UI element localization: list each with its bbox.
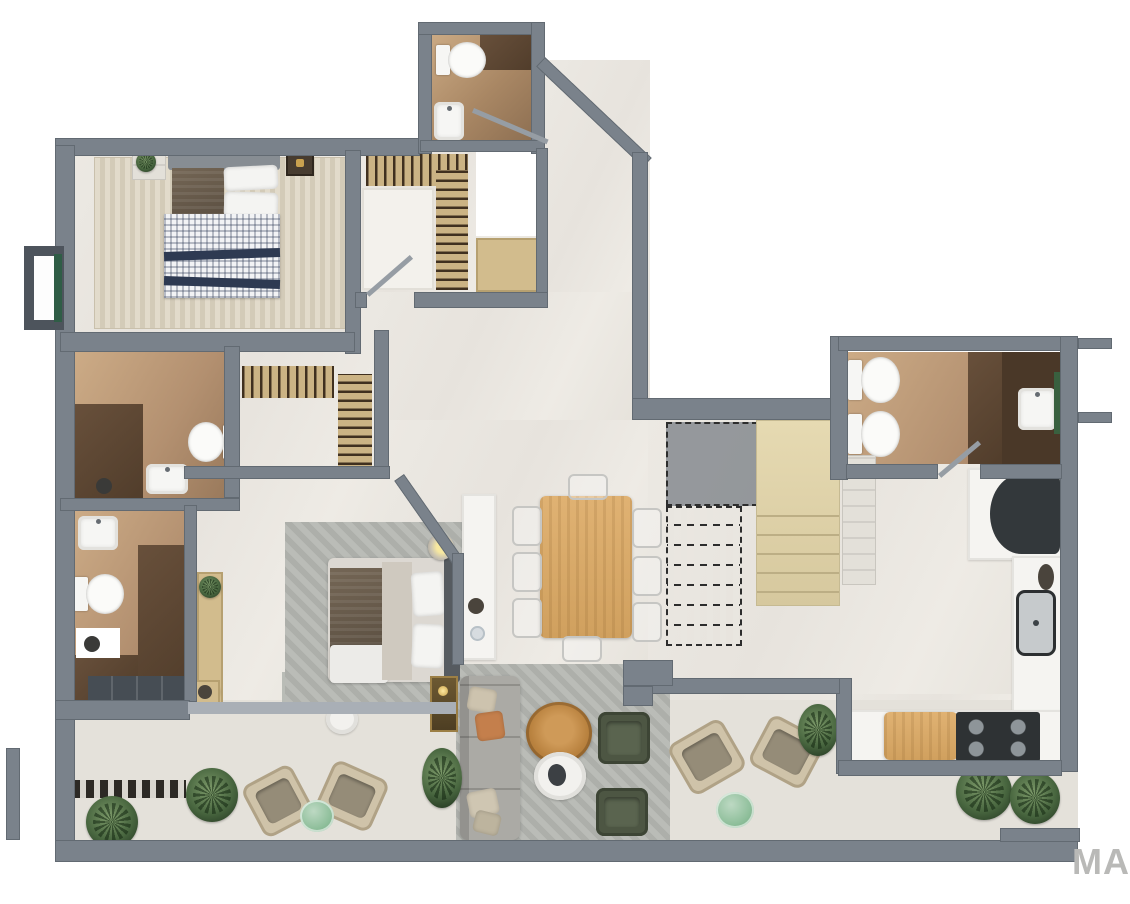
master-pillow-b xyxy=(411,623,445,669)
bath4-toilet xyxy=(848,354,902,406)
kitchen-bottles xyxy=(1038,564,1054,590)
wall-bath1-left xyxy=(418,22,432,154)
wall-void-bottom xyxy=(632,398,848,420)
bath3-shower-head xyxy=(84,636,100,652)
dining-chair-1 xyxy=(512,506,542,546)
armchair-1 xyxy=(598,712,650,764)
wall-bath1-top xyxy=(418,22,545,35)
wall-bath4-top xyxy=(838,336,1078,351)
parapet-bottom xyxy=(55,840,1078,862)
wall-master-bottom xyxy=(55,700,190,720)
console-vase xyxy=(470,626,485,641)
console-jar xyxy=(468,598,484,614)
wall-closet2-right xyxy=(374,330,389,478)
terrace-deck-slats xyxy=(58,780,186,798)
kitchen-stove xyxy=(956,712,1040,762)
wall-stub-right-2 xyxy=(1078,412,1112,423)
wall-kitchen-bottom xyxy=(838,760,1062,776)
wall-closet1-right xyxy=(536,148,548,300)
sofa-pillow-2 xyxy=(474,710,506,742)
dining-chair-2 xyxy=(512,552,542,592)
wall-bath1-bottom xyxy=(420,140,545,152)
sofa-pillow-1 xyxy=(466,686,498,714)
wall-bath4-bottom-a xyxy=(846,464,938,479)
terrace-green-table-2 xyxy=(716,792,754,828)
corridor-floor xyxy=(355,292,648,422)
armchair-2 xyxy=(596,788,648,836)
wall-bath4-bottom-b xyxy=(980,464,1062,479)
bath4-sink xyxy=(1018,388,1056,430)
kitchen-cutting-board xyxy=(884,712,958,760)
master-bed-throw xyxy=(330,568,384,652)
dining-chair-7 xyxy=(568,474,608,500)
wall-far-left-stub xyxy=(6,748,20,840)
bath1-toilet xyxy=(436,40,488,80)
wall-bath2-bottom xyxy=(60,498,240,511)
bath4-bidet xyxy=(848,408,902,460)
closet2-rod-top xyxy=(242,366,334,398)
bath2-sink xyxy=(146,464,188,494)
wall-living-stub-b xyxy=(623,686,653,706)
bath1-sink xyxy=(434,102,464,140)
terrace-plant-2 xyxy=(186,768,238,822)
wall-entry-right xyxy=(632,152,648,420)
wall-closet1-bottom-a xyxy=(355,292,367,308)
stairs-upper-dashed xyxy=(666,422,758,506)
wall-stub-right-1 xyxy=(1078,338,1112,349)
wall-top-bedroom xyxy=(55,138,420,156)
bath3-toilet xyxy=(74,572,126,616)
terrace-plant-4 xyxy=(798,704,838,756)
closet1-dresser xyxy=(362,188,434,290)
wall-living-stub-a xyxy=(623,660,673,686)
bath2-shower-head xyxy=(96,478,112,494)
wall-closet1-bottom-b xyxy=(414,292,548,308)
kitchen-sink xyxy=(1016,590,1056,656)
bed1-pillow-a xyxy=(223,165,278,192)
terrace-plant-6 xyxy=(1010,772,1060,824)
closet1-void xyxy=(476,150,536,236)
wall-master-top xyxy=(184,466,390,479)
master-bed-duvet xyxy=(330,645,388,683)
dining-chair-3 xyxy=(512,598,542,638)
parapet-corner xyxy=(1000,828,1080,842)
wall-bath4-left xyxy=(830,336,848,480)
console-plant xyxy=(199,576,221,598)
dining-chair-6 xyxy=(632,602,662,642)
bed1-blanket xyxy=(172,168,224,216)
staircase xyxy=(756,420,840,606)
dining-chair-5 xyxy=(632,556,662,596)
closet2-rod-side xyxy=(338,374,372,474)
dining-table xyxy=(540,496,632,638)
patio-side-table-bowl xyxy=(198,685,212,699)
master-pillow-a xyxy=(411,571,446,617)
wall-bedroom1-bottom xyxy=(60,332,355,352)
wall-master-right xyxy=(452,553,464,665)
dining-chair-4 xyxy=(632,508,662,548)
terrace-green-table-1 xyxy=(300,800,334,832)
glass-master-door xyxy=(188,702,456,714)
master-bed-sheet xyxy=(382,562,412,680)
closet1-cabinet xyxy=(476,238,538,292)
wall-bath3-right xyxy=(184,505,197,702)
kitchen-fridge xyxy=(990,474,1060,554)
dining-chair-8 xyxy=(562,636,602,662)
closet1-rod-side xyxy=(436,170,468,290)
wall-terrace-sep xyxy=(650,678,840,694)
watermark: MAX xyxy=(1072,841,1130,883)
stairs-dashed-treads xyxy=(666,506,742,646)
bath3-sink xyxy=(78,516,118,550)
floor-plan-canvas: MAX xyxy=(0,0,1130,904)
bay-window-green xyxy=(54,254,62,322)
wall-outer-right xyxy=(1060,336,1078,772)
terrace-plant-3 xyxy=(422,748,462,808)
wall-bedroom1-closet xyxy=(345,150,361,354)
